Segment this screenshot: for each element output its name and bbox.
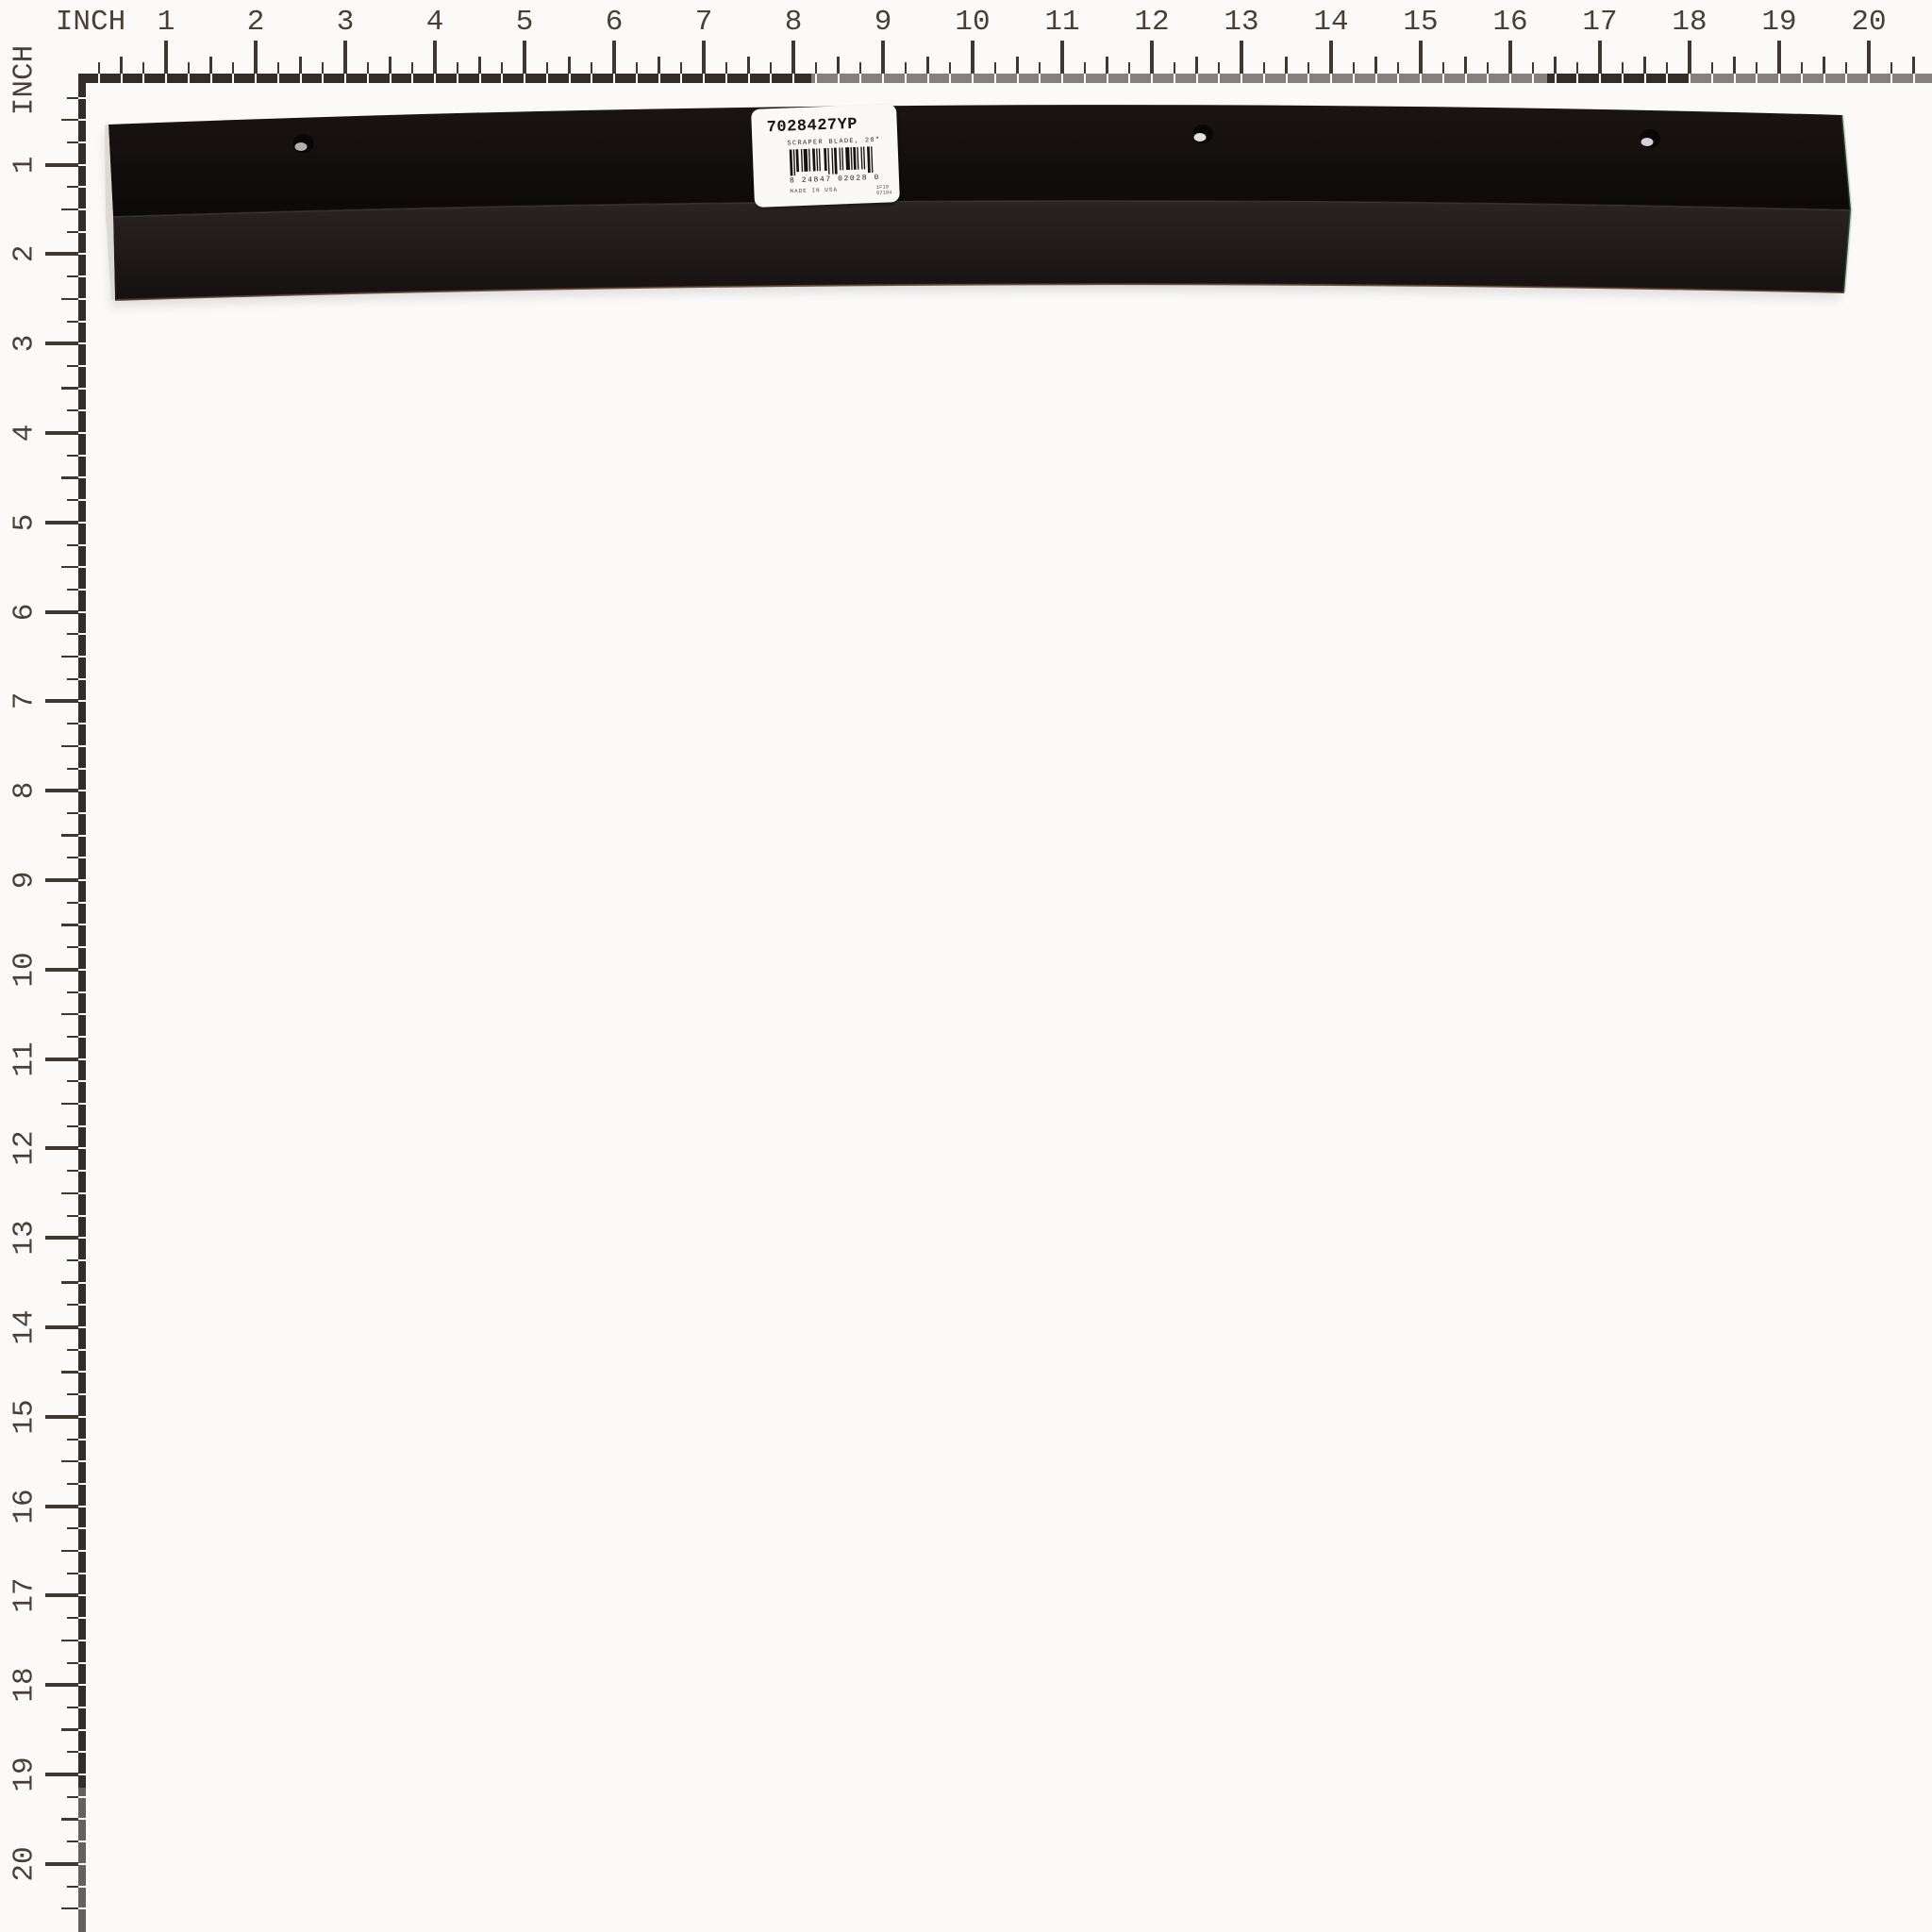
barcode-bar [845, 147, 850, 170]
barcode-bar [863, 146, 865, 169]
barcode-bar [819, 148, 821, 171]
lot-code: 1F10 07184 [876, 184, 892, 196]
barcode-bar [839, 147, 841, 170]
barcode-bar [850, 147, 852, 170]
barcode-bar [790, 149, 793, 175]
barcode-bar [860, 147, 862, 170]
barcode-bar [841, 147, 843, 170]
barcode-bar [804, 149, 808, 172]
product-label: 7028427YP SCRAPER BLADE, 20" 8 24847 020… [751, 104, 900, 208]
barcode-bar [824, 148, 827, 171]
barcode-bar [871, 146, 873, 173]
blade-hole-reflection [295, 142, 308, 151]
barcode-bar [808, 149, 810, 172]
photo-stage: 1234567891011121314151617181920 12345678… [0, 0, 1932, 1932]
barcode-bar [853, 147, 857, 170]
part-number: 7028427YP [766, 116, 858, 138]
scraper-blade [0, 0, 1932, 1932]
barcode-bar [812, 148, 816, 171]
barcode-bar [831, 148, 833, 175]
barcode-bar [816, 148, 818, 171]
blade-hole-reflection [1194, 133, 1207, 142]
barcode-bar [857, 147, 858, 170]
blade-upper-face [108, 105, 1851, 217]
barcode-bar [867, 146, 871, 173]
label-bottom-row: MADE IN USA 1F10 07184 [790, 184, 891, 200]
barcode-bar [795, 149, 799, 172]
barcode-bar [793, 149, 795, 175]
barcode [789, 146, 876, 176]
made-in-text: MADE IN USA [790, 187, 838, 195]
blade-hole-reflection [1641, 138, 1654, 146]
barcode-bar [801, 149, 803, 172]
lot-code-line2: 07184 [876, 190, 892, 197]
barcode-bar [834, 148, 838, 175]
barcode-bar [827, 148, 829, 175]
